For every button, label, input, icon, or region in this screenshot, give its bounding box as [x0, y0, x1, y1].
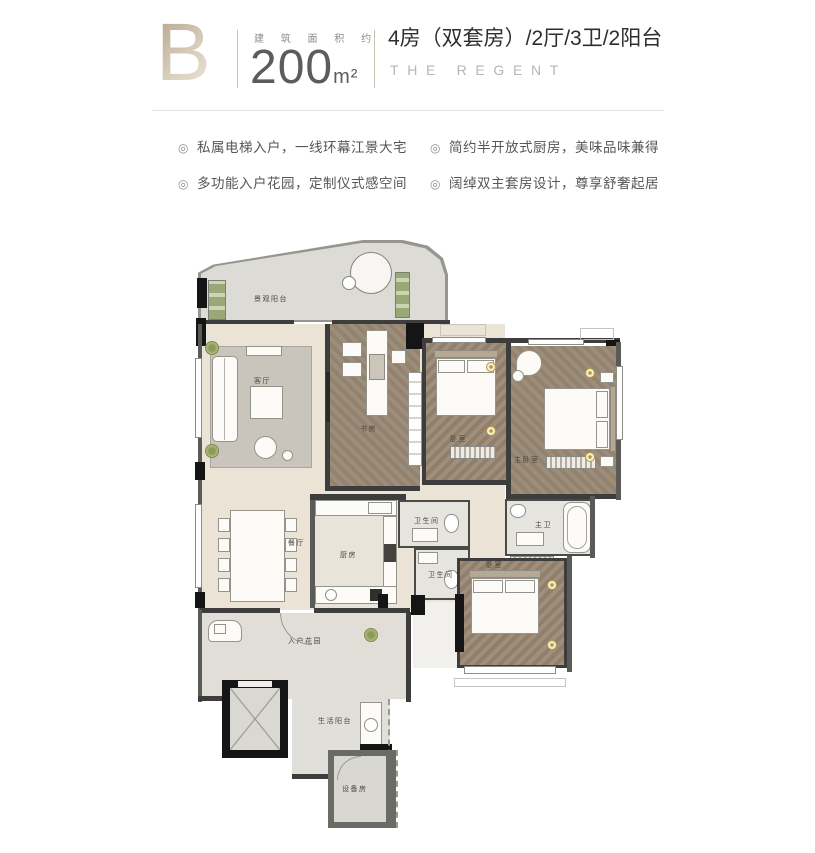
- feature-text: 私属电梯入户，一线环幕江景大宅: [197, 140, 407, 155]
- window: [528, 339, 584, 345]
- label-bedroom-3: 卧室: [486, 560, 503, 570]
- armchair: [254, 436, 277, 459]
- window: [616, 366, 623, 440]
- window: [464, 666, 556, 674]
- side-table: [512, 370, 524, 382]
- wall: [198, 696, 224, 701]
- tv-console: [246, 346, 282, 356]
- bullet-icon: ◎: [178, 141, 189, 155]
- bay-window-outline: [454, 678, 566, 687]
- label-entry-garden: 入户花园: [288, 636, 322, 646]
- ceiling-light-icon: [547, 580, 557, 590]
- planter-icon: [208, 280, 226, 320]
- table-equipment: [369, 354, 385, 380]
- bench-closet: [450, 446, 496, 459]
- dining-chair: [285, 518, 297, 532]
- coffee-table: [250, 386, 283, 419]
- divider-horizontal: [152, 110, 664, 111]
- label-bathroom-1: 卫生间: [414, 516, 440, 526]
- sofa-cushion-line: [224, 358, 225, 440]
- hall-cabinet: [408, 372, 422, 466]
- floorplan: 景观阳台 客厅 书房: [192, 238, 624, 838]
- nightstand: [600, 456, 614, 467]
- side-table: [282, 450, 293, 461]
- ceiling-light-icon: [585, 368, 595, 378]
- feature-text: 简约半开放式厨房，美味品味兼得: [449, 140, 659, 155]
- dining-chair: [285, 578, 297, 592]
- dining-table: [230, 510, 285, 602]
- area-value: 200m²: [250, 40, 358, 95]
- dining-chair: [218, 518, 230, 532]
- label-bathroom-2: 卫生间: [428, 570, 454, 580]
- pillow: [473, 580, 503, 593]
- label-bedroom-2: 卧室: [450, 434, 467, 444]
- feature-item: ◎私属电梯入户，一线环幕江景大宅: [178, 136, 407, 156]
- label-master-bath: 主卫: [535, 520, 552, 530]
- wall: [198, 610, 202, 702]
- stove: [384, 544, 396, 562]
- wall-pier: [411, 595, 425, 615]
- elevator-door: [238, 681, 272, 687]
- dining-chair: [218, 578, 230, 592]
- wall: [422, 480, 510, 485]
- label-equipment-room: 设备房: [342, 784, 368, 794]
- vanity: [412, 528, 438, 542]
- wall-pier: [455, 594, 464, 652]
- area-unit: m²: [333, 66, 358, 88]
- wall-pier: [195, 462, 205, 480]
- pillow: [596, 421, 608, 448]
- wall: [406, 612, 411, 702]
- kitchen-sink: [368, 502, 392, 514]
- plan-letter: B: [156, 12, 211, 94]
- window: [195, 358, 202, 438]
- open-edge-dashed: [396, 750, 398, 828]
- ceiling-light-icon: [547, 640, 557, 650]
- project-name: THE REGENT: [390, 62, 567, 78]
- label-study: 书房: [360, 424, 377, 434]
- nightstand: [600, 372, 614, 383]
- window: [195, 504, 202, 588]
- bed-headboard: [469, 570, 541, 578]
- sofa: [212, 356, 238, 442]
- dining-chair: [285, 558, 297, 572]
- label-dining-room: 餐厅: [288, 538, 305, 548]
- label-service-balcony: 生活阳台: [318, 716, 352, 726]
- study-chair: [342, 342, 362, 357]
- wall: [204, 320, 294, 324]
- page: B 建 筑 面 积 约 200m² 4房（双套房）/2厅/3卫/2阳台 THE …: [0, 0, 815, 853]
- label-scenic-balcony: 景观阳台: [254, 294, 288, 304]
- elevator-icon: [230, 688, 280, 750]
- tv-panel: [326, 372, 330, 422]
- plant-icon: [205, 341, 219, 355]
- feature-text: 多功能入户花园，定制仪式感空间: [197, 176, 407, 191]
- study-chair: [342, 362, 362, 377]
- label-master-bedroom: 主卧室: [514, 455, 540, 465]
- feature-item: ◎阔绰双主套房设计，尊享舒奢起居: [430, 172, 659, 192]
- dining-chair: [218, 538, 230, 552]
- area-number: 200: [250, 41, 333, 94]
- bay-window-outline: [580, 328, 614, 340]
- bullet-icon: ◎: [430, 141, 441, 155]
- divider-vertical-1: [237, 30, 238, 88]
- wall: [590, 496, 595, 558]
- vanity: [516, 532, 544, 546]
- sink-basin: [325, 589, 337, 601]
- divider-vertical-2: [374, 30, 375, 88]
- ceiling-light-icon: [585, 452, 595, 462]
- pillow: [505, 580, 535, 593]
- tree-icon: [342, 276, 356, 290]
- bed-headboard: [434, 350, 498, 358]
- tree-icon: [350, 252, 392, 294]
- wall: [325, 486, 420, 491]
- dining-chair: [218, 558, 230, 572]
- ceiling-light-icon: [486, 426, 496, 436]
- feature-item: ◎多功能入户花园，定制仪式感空间: [178, 172, 407, 192]
- pillow: [596, 391, 608, 418]
- layout-title: 4房（双套房）/2厅/3卫/2阳台: [388, 22, 662, 52]
- bathtub-inner: [567, 506, 587, 549]
- plant-icon: [205, 444, 219, 458]
- bullet-icon: ◎: [430, 177, 441, 191]
- feature-text: 阔绰双主套房设计，尊享舒奢起居: [449, 176, 659, 191]
- plant-icon: [364, 628, 378, 642]
- planter-icon: [395, 272, 410, 318]
- bench-cushion: [214, 624, 226, 634]
- ceiling-light-icon: [486, 362, 496, 372]
- vanity: [418, 552, 438, 564]
- label-kitchen: 厨房: [340, 550, 357, 560]
- label-living-room: 客厅: [254, 376, 271, 386]
- washer-icon: [364, 718, 378, 732]
- study-chair: [391, 350, 406, 364]
- pillow: [438, 360, 465, 373]
- wall: [567, 556, 572, 672]
- feature-item: ◎简约半开放式厨房，美味品味兼得: [430, 136, 659, 156]
- wall-pier: [197, 278, 207, 308]
- bullet-icon: ◎: [178, 177, 189, 191]
- wall-pier: [195, 592, 205, 608]
- toilet: [510, 504, 526, 518]
- bay-window-outline: [440, 324, 486, 336]
- toilet: [444, 514, 459, 533]
